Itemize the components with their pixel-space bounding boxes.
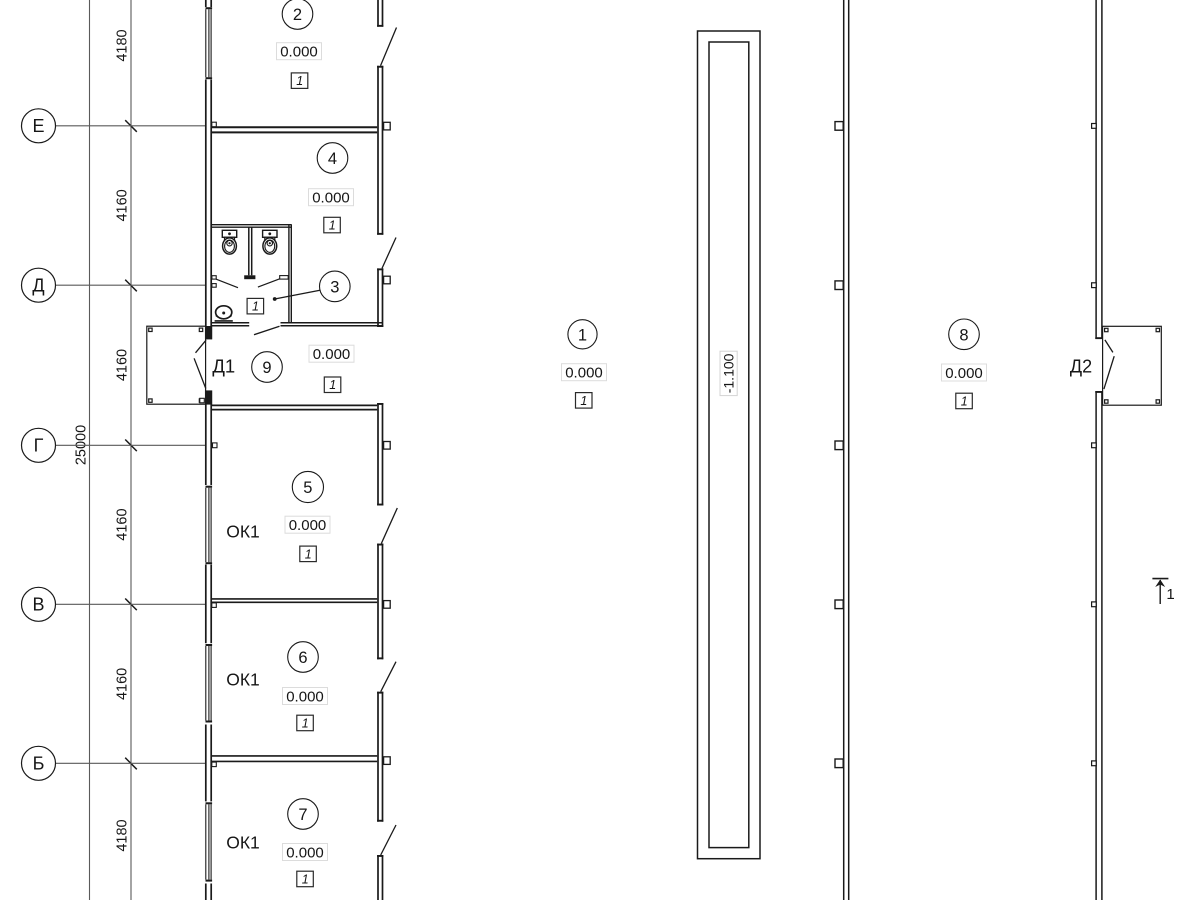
svg-text:1: 1	[302, 716, 309, 730]
svg-text:7: 7	[298, 806, 307, 824]
svg-text:6: 6	[298, 649, 307, 667]
svg-text:1: 1	[329, 219, 336, 233]
svg-text:1: 1	[329, 378, 336, 392]
svg-text:0.000: 0.000	[280, 44, 318, 61]
svg-text:0.000: 0.000	[312, 190, 350, 207]
svg-text:4160: 4160	[115, 668, 131, 700]
svg-text:ОК1: ОК1	[226, 833, 260, 853]
svg-text:1: 1	[1166, 586, 1174, 603]
svg-text:1: 1	[252, 300, 259, 314]
svg-text:В: В	[32, 595, 44, 615]
svg-text:4160: 4160	[115, 349, 131, 381]
svg-text:1: 1	[961, 394, 968, 408]
svg-text:3: 3	[330, 278, 339, 296]
svg-text:1: 1	[305, 547, 312, 561]
svg-text:4180: 4180	[115, 29, 131, 61]
svg-text:0.000: 0.000	[286, 688, 324, 705]
svg-text:5: 5	[303, 479, 312, 497]
svg-text:1: 1	[302, 872, 309, 886]
svg-text:1: 1	[580, 394, 587, 408]
svg-text:4160: 4160	[115, 189, 131, 221]
svg-text:0.000: 0.000	[313, 346, 351, 363]
svg-text:1: 1	[296, 74, 303, 88]
svg-text:0.000: 0.000	[286, 844, 324, 861]
svg-text:Д: Д	[32, 276, 44, 296]
svg-text:2: 2	[293, 6, 302, 24]
svg-text:Г: Г	[34, 436, 44, 456]
svg-text:Д2: Д2	[1070, 357, 1092, 377]
svg-text:-1.100: -1.100	[721, 353, 737, 393]
svg-text:ОК1: ОК1	[226, 522, 260, 542]
svg-text:1: 1	[578, 326, 587, 344]
svg-text:0.000: 0.000	[565, 365, 603, 382]
svg-text:ОК1: ОК1	[226, 670, 260, 690]
svg-text:9: 9	[262, 359, 271, 377]
svg-text:Д1: Д1	[212, 356, 235, 377]
svg-text:Б: Б	[33, 754, 45, 774]
svg-text:4160: 4160	[115, 508, 131, 540]
svg-text:0.000: 0.000	[289, 517, 327, 534]
svg-text:0.000: 0.000	[945, 365, 983, 382]
svg-text:Е: Е	[32, 116, 44, 136]
svg-text:4180: 4180	[115, 819, 131, 851]
svg-text:4: 4	[328, 150, 337, 168]
svg-text:8: 8	[959, 326, 968, 344]
